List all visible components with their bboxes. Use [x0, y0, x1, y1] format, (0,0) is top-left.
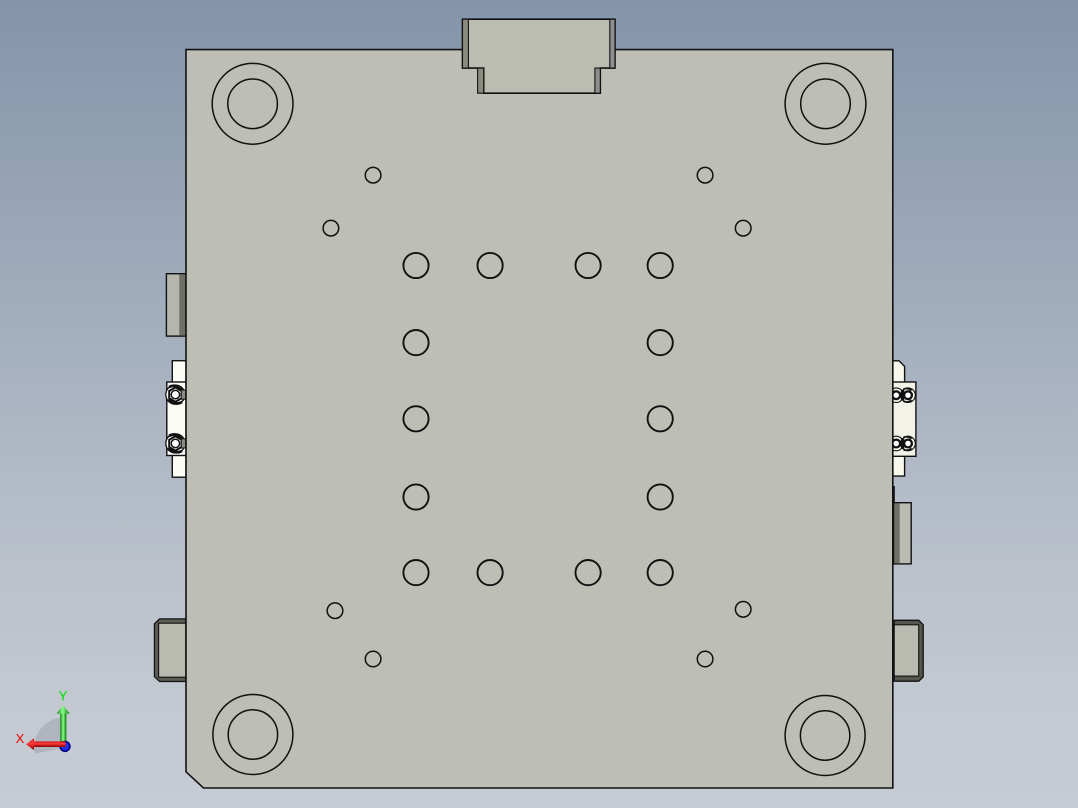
svg-text:Y: Y	[58, 689, 67, 704]
svg-text:X: X	[16, 731, 25, 746]
